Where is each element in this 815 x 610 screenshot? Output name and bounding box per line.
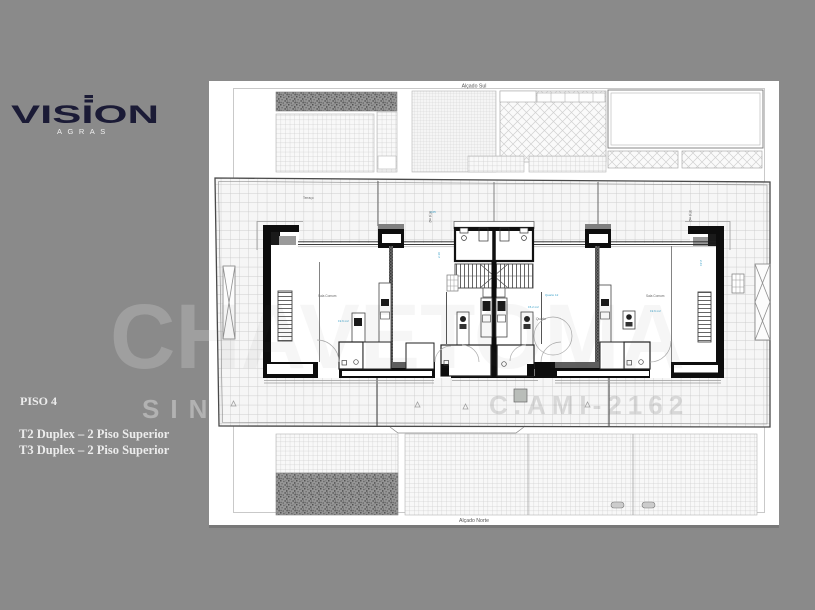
svg-text:Alçado Sul: Alçado Sul — [462, 84, 487, 90]
svg-text:2.10: 2.10 — [437, 252, 441, 258]
svg-text:AGRAS: AGRAS — [57, 127, 111, 136]
svg-text:3.05: 3.05 — [430, 210, 436, 214]
svg-text:CHAVETOMA: CHAVETOMA — [110, 286, 685, 388]
svg-text:T2 Duplex – 2 Piso Superior: T2 Duplex – 2 Piso Superior — [19, 427, 170, 441]
svg-text:2.44: 2.44 — [699, 260, 703, 266]
svg-text:PISO 4: PISO 4 — [20, 394, 57, 408]
svg-text:T3 Duplex – 2 Piso Superior: T3 Duplex – 2 Piso Superior — [19, 443, 170, 457]
svg-text:Alçado Norte: Alçado Norte — [459, 518, 489, 524]
svg-text:37,6 m2: 37,6 m2 — [688, 210, 692, 222]
svg-text:C.AMI-2162: C.AMI-2162 — [489, 390, 689, 420]
svg-text:VISION: VISION — [11, 101, 159, 129]
svg-text:Terraço: Terraço — [303, 196, 314, 200]
